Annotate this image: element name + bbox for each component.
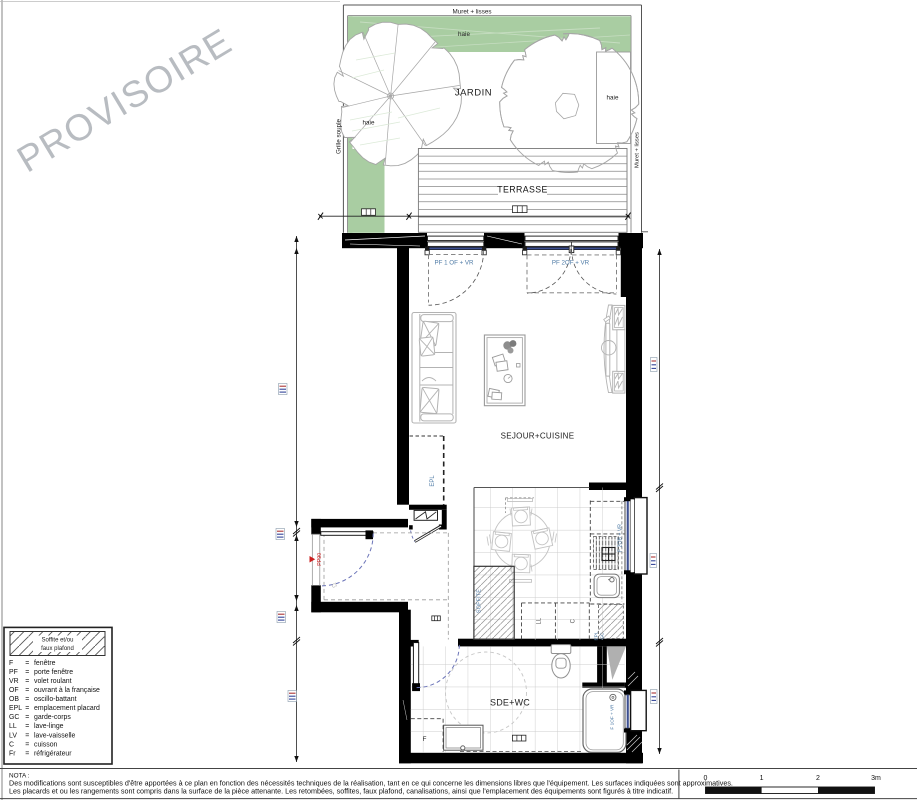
svg-text:F 2OB + VR: F 2OB + VR [617,524,623,552]
svg-text:LL: LL [9,723,17,730]
svg-text:=: = [25,696,29,703]
svg-text:PP90: PP90 [317,553,323,566]
svg-text:=: = [25,687,29,694]
svg-text:Soffite et/ou: Soffite et/ou [42,638,74,644]
svg-text:=: = [25,732,29,739]
svg-text:lave-linge: lave-linge [34,723,64,730]
svg-text:SDE+WC: SDE+WC [490,698,530,708]
svg-text:OF: OF [9,687,19,694]
svg-text:=: = [25,669,29,676]
svg-text:SOFFITE: SOFFITE [476,589,482,613]
svg-text:EPL: EPL [9,705,22,712]
svg-text:Muret + lisses: Muret + lisses [452,9,491,16]
svg-text:Muret + lisses: Muret + lisses [635,132,641,168]
svg-text:=: = [25,660,29,667]
svg-text:lave-vaisselle: lave-vaisselle [34,732,76,739]
svg-text:=: = [25,750,29,757]
svg-text:réfrigérateur: réfrigérateur [34,750,72,757]
svg-text:C: C [571,618,577,623]
svg-text:=: = [25,741,29,748]
svg-text:garde-corps: garde-corps [34,714,71,721]
svg-text:EPL: EPL [594,631,600,640]
svg-text:faux plafond: faux plafond [41,646,74,652]
svg-text:GC: GC [9,714,19,721]
svg-text:LL: LL [537,617,543,624]
svg-text:VR: VR [9,678,19,685]
svg-text:2: 2 [816,775,820,782]
svg-text:SEJOUR+CUISINE: SEJOUR+CUISINE [501,432,575,441]
svg-text:Fr: Fr [9,750,16,757]
svg-text:LV: LV [9,732,17,739]
svg-text:=: = [25,678,29,685]
svg-text:GC: GC [600,632,606,640]
svg-text:volet roulant: volet roulant [34,678,72,685]
svg-text:F: F [423,736,427,743]
svg-text:oscillo-battant: oscillo-battant [34,696,77,703]
svg-text:haie: haie [363,120,375,127]
svg-text:fenêtre: fenêtre [34,660,56,667]
svg-text:JARDIN: JARDIN [455,88,492,99]
svg-text:=: = [25,705,29,712]
svg-text:C: C [9,741,14,748]
svg-text:TERRASSE: TERRASSE [497,185,548,195]
svg-text:porte fenêtre: porte fenêtre [34,669,73,676]
svg-text:0: 0 [704,775,708,782]
svg-text:Grille souple: Grille souple [336,119,343,154]
svg-text:haie: haie [458,31,470,38]
svg-text:1: 1 [760,775,764,782]
svg-text:=: = [25,714,29,721]
svg-text:F 1OF + VR: F 1OF + VR [610,704,615,730]
svg-text:emplacement placard: emplacement placard [34,705,100,712]
svg-text:haie: haie [607,95,619,102]
svg-text:PF: PF [9,669,18,676]
svg-text:3m: 3m [871,775,881,782]
svg-text:PF 1 OF + VR: PF 1 OF + VR [434,259,474,266]
svg-text:cuisson: cuisson [34,741,58,748]
svg-text:Les placards et ou les rangeme: Les placards et ou les rangements sont c… [9,787,673,796]
svg-text:F: F [9,660,13,667]
svg-text:EPL: EPL [430,475,436,487]
svg-text:=: = [25,723,29,730]
svg-text:OB: OB [9,696,19,703]
svg-text:ouvrant à la française: ouvrant à la française [34,687,100,694]
svg-text:PF 2OF + VR: PF 2OF + VR [552,259,590,266]
